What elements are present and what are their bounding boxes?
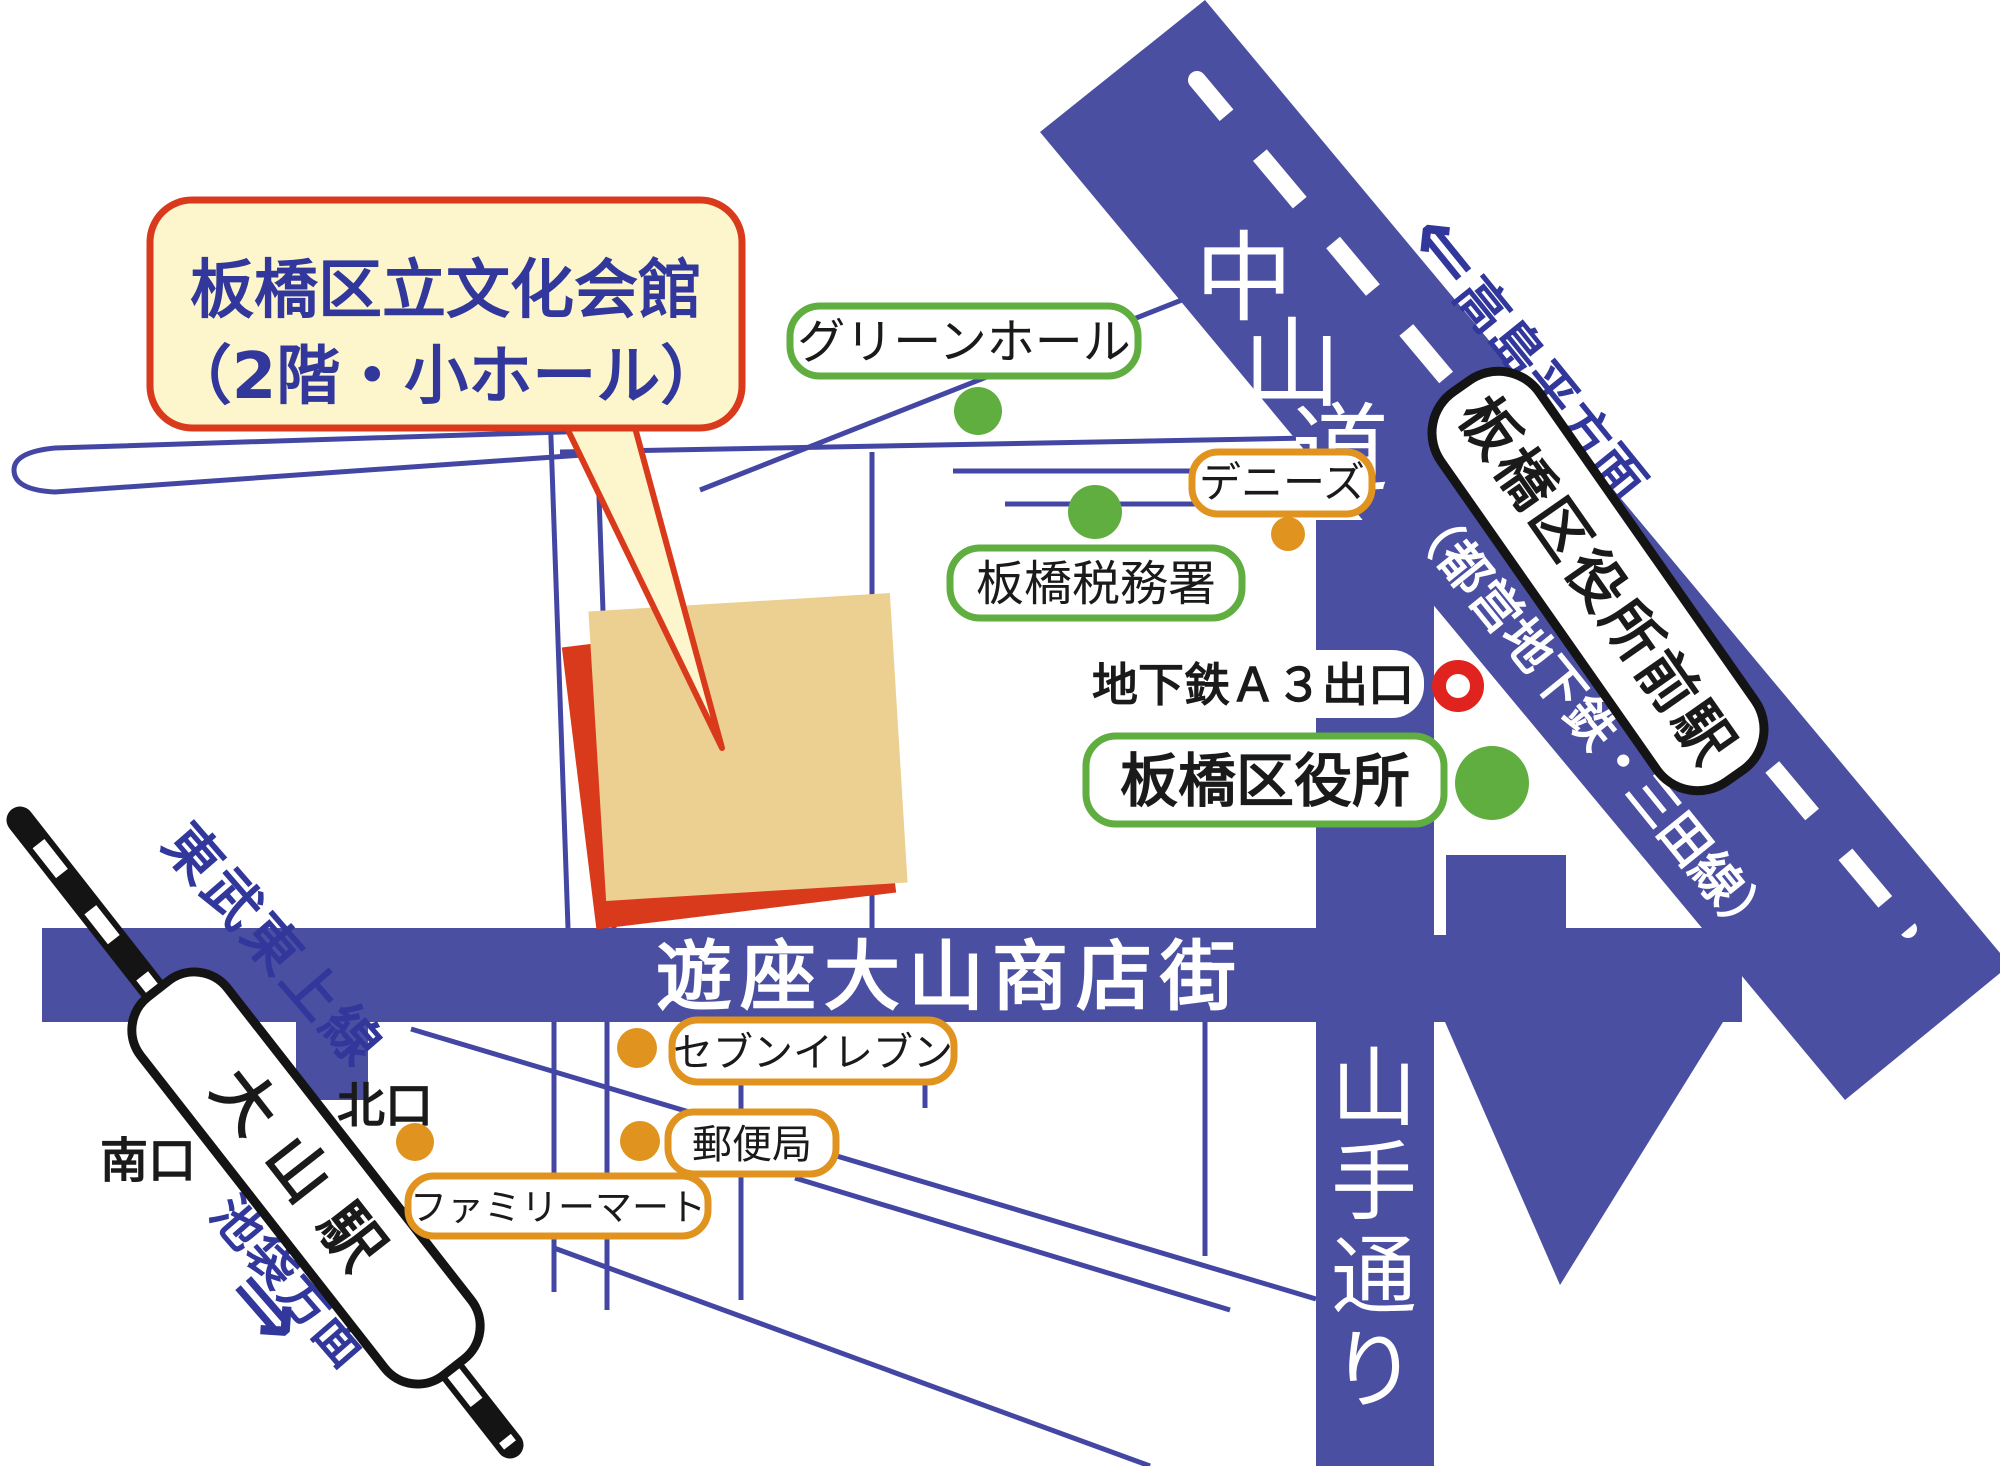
road-name-yamate-char2: 手 xyxy=(1331,1133,1417,1233)
ward-office-dot xyxy=(1455,746,1529,820)
map-svg: 板橋区立文化会館 （2階・小ホール） 中 山 道 山 手 通 り 遊座大山商店街… xyxy=(0,0,2000,1466)
culture-hall-buildings xyxy=(562,593,908,929)
label-subway-exit-text: 地下鉄Ａ３出口 xyxy=(1092,658,1414,712)
label-tax-office-text: 板橋税務署 xyxy=(976,556,1216,612)
map-canvas: 板橋区立文化会館 （2階・小ホール） 中 山 道 山 手 通 り 遊座大山商店街… xyxy=(0,0,2000,1466)
label-family-mart: ファミリーマート xyxy=(408,1176,708,1236)
road-name-shopping-street: 遊座大山商店街 xyxy=(656,932,1244,1021)
label-post-office-text: 郵便局 xyxy=(692,1122,812,1168)
family-mart-dot xyxy=(396,1123,434,1161)
road-stub-east xyxy=(1446,855,1566,935)
label-subway-exit: 地下鉄Ａ３出口 xyxy=(1082,650,1424,718)
label-seven-eleven: セブンイレブン xyxy=(672,1020,954,1082)
minor-road-south-diagonal-2 xyxy=(554,1248,1150,1466)
label-green-hall-text: グリーンホール xyxy=(797,314,1131,370)
tax-office-dot xyxy=(1068,485,1122,539)
label-green-hall: グリーンホール xyxy=(790,306,1138,376)
road-nakasendo-south-tip xyxy=(1445,1022,1723,1285)
callout-line2: （2階・小ホール） xyxy=(168,340,725,414)
callout-line1: 板橋区立文化会館 xyxy=(190,254,702,328)
minor-road-east-west-1 xyxy=(560,438,1308,452)
minor-road-tapered-west xyxy=(14,430,625,492)
label-dennys: デニーズ xyxy=(1192,452,1372,514)
road-name-yamate-char3: 通 xyxy=(1331,1227,1417,1327)
post-office-dot xyxy=(620,1121,660,1161)
label-tax-office: 板橋税務署 xyxy=(950,548,1242,618)
subway-exit-dot xyxy=(1439,667,1477,705)
minor-road-south-diagonal-3 xyxy=(795,1178,1230,1310)
culture-hall-building xyxy=(588,593,907,901)
green-hall-dot xyxy=(954,387,1002,435)
label-ward-office-text: 板橋区役所 xyxy=(1120,747,1410,815)
dennys-dot xyxy=(1271,517,1305,551)
south-exit-label: 南口 xyxy=(100,1133,196,1189)
label-seven-eleven-text: セブンイレブン xyxy=(673,1030,953,1076)
label-post-office: 郵便局 xyxy=(668,1112,836,1174)
seven-eleven-dot xyxy=(617,1028,657,1068)
road-name-yamate-char4: り xyxy=(1331,1321,1417,1421)
label-ward-office: 板橋区役所 xyxy=(1086,736,1444,824)
road-name-yamate-char1: 山 xyxy=(1331,1039,1417,1139)
label-family-mart-text: ファミリーマート xyxy=(410,1186,706,1229)
label-dennys-text: デニーズ xyxy=(1199,458,1365,507)
